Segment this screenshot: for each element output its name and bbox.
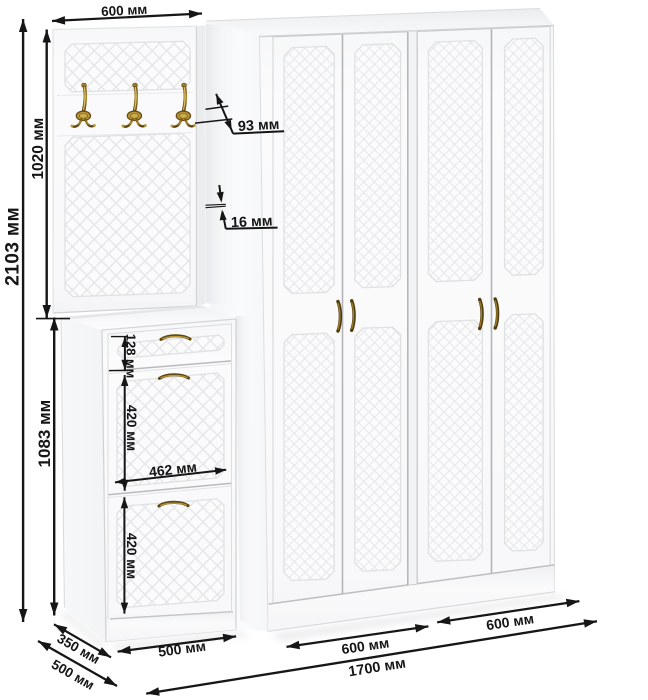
svg-text:128 мм: 128 мм: [123, 334, 138, 379]
svg-text:420 мм: 420 мм: [124, 533, 139, 579]
svg-text:2103 мм: 2103 мм: [2, 207, 23, 286]
svg-text:600 мм: 600 мм: [101, 2, 148, 19]
svg-text:16 мм: 16 мм: [231, 213, 273, 231]
svg-text:420 мм: 420 мм: [124, 405, 139, 451]
svg-text:1083 мм: 1083 мм: [35, 400, 54, 468]
svg-text:93 мм: 93 мм: [237, 117, 279, 135]
svg-text:1020 мм: 1020 мм: [30, 118, 47, 180]
